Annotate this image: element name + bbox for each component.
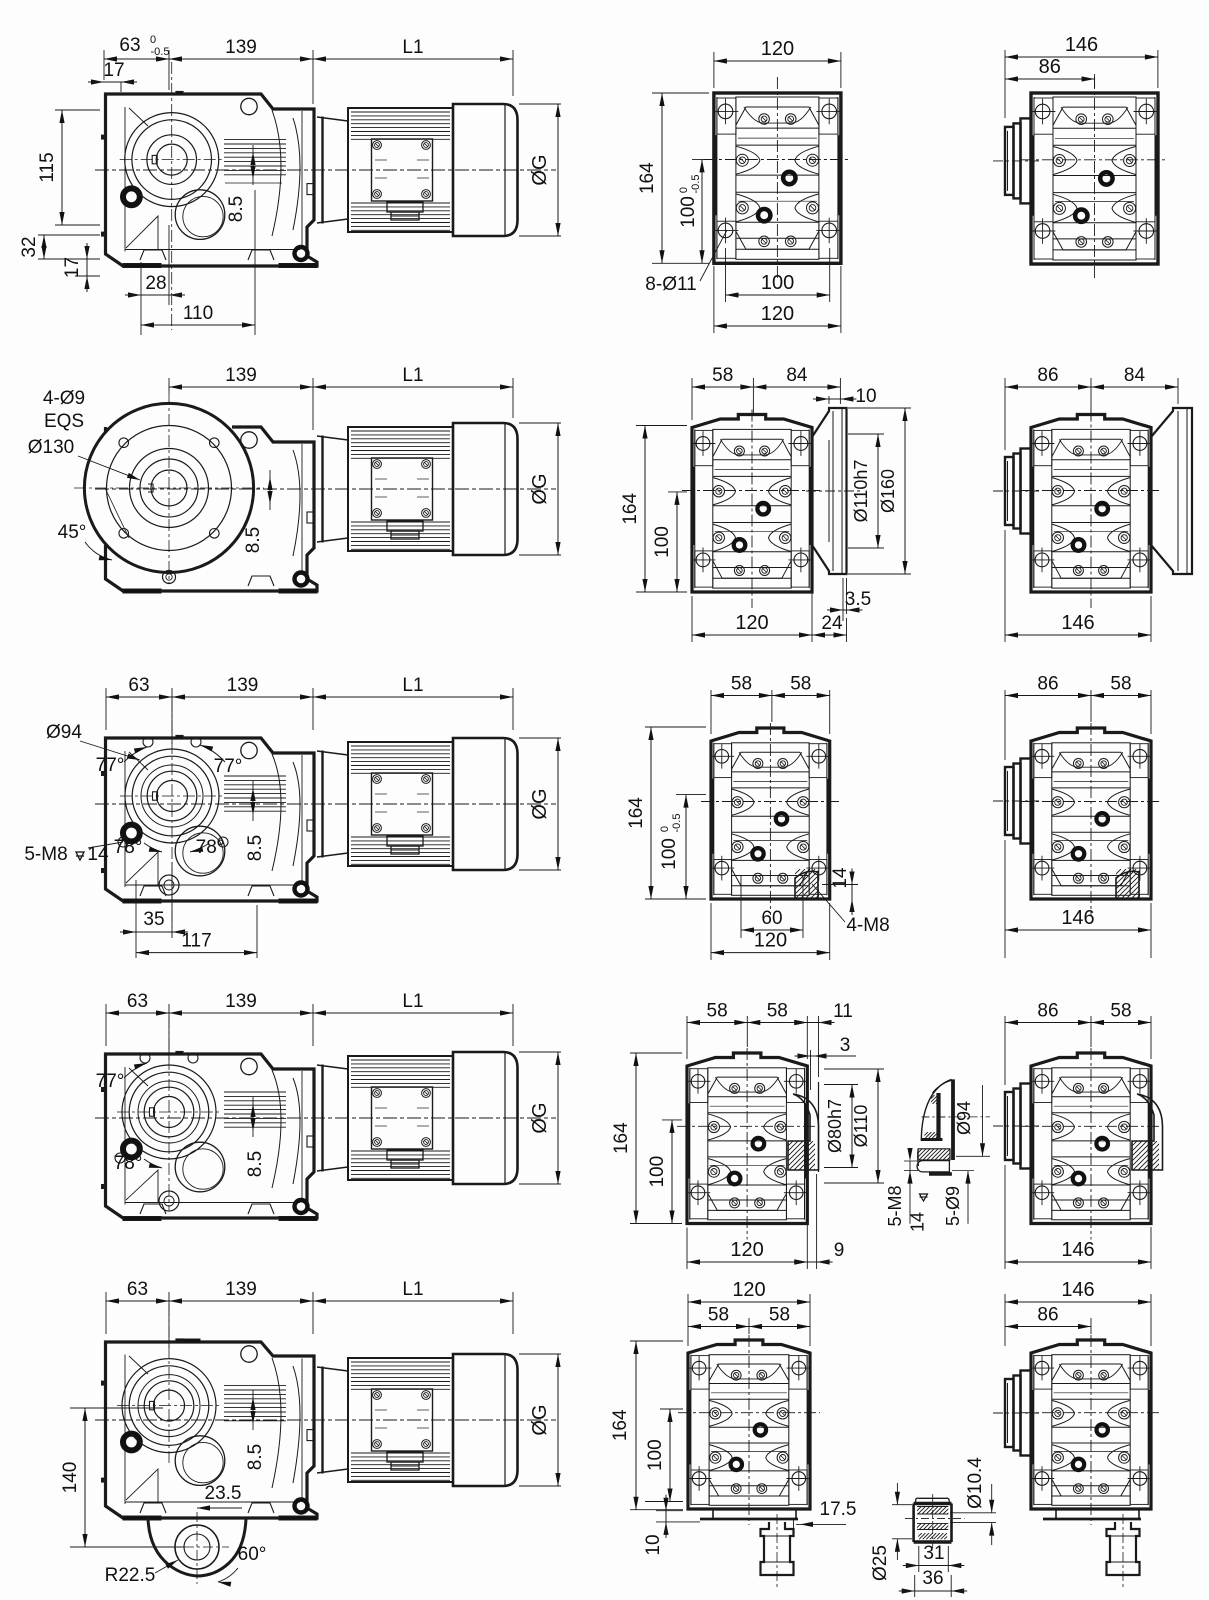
svg-text:4-Ø9: 4-Ø9 (43, 388, 85, 409)
svg-text:58: 58 (707, 1001, 728, 1022)
svg-text:58: 58 (767, 1001, 788, 1022)
svg-text:17: 17 (62, 257, 83, 278)
svg-text:8.5: 8.5 (243, 527, 264, 553)
svg-text:23.5: 23.5 (205, 1483, 242, 1504)
svg-text:78°: 78° (114, 1153, 143, 1174)
svg-text:58: 58 (708, 1305, 729, 1326)
svg-text:ØG: ØG (529, 788, 551, 819)
svg-text:164: 164 (610, 1409, 631, 1441)
svg-text:11: 11 (833, 1001, 853, 1022)
svg-text:58: 58 (1110, 1001, 1131, 1022)
svg-text:120: 120 (754, 930, 787, 952)
svg-text:139: 139 (225, 365, 257, 386)
svg-text:L1: L1 (402, 675, 423, 696)
svg-text:58: 58 (731, 674, 752, 695)
svg-text:86: 86 (1037, 365, 1058, 386)
svg-text:100: 100 (652, 526, 673, 558)
svg-text:5-M8: 5-M8 (885, 1185, 905, 1226)
svg-text:84: 84 (1124, 365, 1146, 386)
svg-text:100: 100 (645, 1439, 666, 1471)
svg-text:8.5: 8.5 (245, 1151, 266, 1177)
svg-text:5-M8: 5-M8 (24, 844, 67, 865)
svg-text:86: 86 (1039, 56, 1061, 78)
svg-text:24: 24 (821, 613, 843, 634)
svg-text:84: 84 (786, 365, 808, 386)
svg-text:139: 139 (225, 991, 257, 1012)
svg-text:Ø110: Ø110 (851, 1105, 871, 1148)
svg-text:8.5: 8.5 (226, 196, 247, 222)
svg-text:77°: 77° (214, 756, 243, 777)
svg-text:Ø160: Ø160 (878, 469, 898, 513)
svg-text:86: 86 (1037, 1001, 1058, 1022)
svg-text:36: 36 (922, 1568, 943, 1589)
svg-text:60°: 60° (238, 1544, 267, 1565)
svg-text:58: 58 (712, 365, 733, 386)
svg-text:8-Ø11: 8-Ø11 (645, 274, 696, 295)
svg-text:100: 100 (678, 196, 699, 228)
svg-text:100: 100 (761, 272, 794, 294)
svg-text:63: 63 (119, 35, 140, 56)
svg-text:L1: L1 (402, 365, 423, 386)
svg-text:14: 14 (830, 867, 851, 889)
svg-text:32: 32 (19, 236, 40, 257)
svg-text:-0.5: -0.5 (690, 175, 702, 194)
svg-text:77°: 77° (96, 755, 125, 776)
svg-text:ØG: ØG (529, 473, 551, 504)
svg-text:0: 0 (678, 187, 690, 193)
svg-text:ØG: ØG (529, 154, 551, 185)
svg-text:17.5: 17.5 (820, 1499, 857, 1520)
svg-text:L1: L1 (402, 37, 423, 58)
svg-text:L1: L1 (402, 1279, 423, 1300)
svg-text:3: 3 (840, 1035, 851, 1056)
svg-text:120: 120 (732, 1279, 765, 1301)
svg-text:0: 0 (659, 826, 671, 832)
svg-text:ØG: ØG (529, 1102, 551, 1133)
svg-text:Ø94: Ø94 (954, 1101, 974, 1135)
svg-text:Ø10.4: Ø10.4 (965, 1457, 986, 1509)
svg-text:5-Ø9: 5-Ø9 (943, 1186, 963, 1226)
svg-text:146: 146 (1061, 1279, 1094, 1301)
svg-text:164: 164 (620, 493, 641, 525)
svg-text:77°: 77° (96, 1071, 125, 1092)
svg-text:8.5: 8.5 (245, 835, 266, 861)
svg-text:60: 60 (761, 908, 782, 929)
svg-text:139: 139 (225, 37, 257, 58)
svg-text:4-M8: 4-M8 (846, 915, 889, 936)
svg-text:58: 58 (769, 1305, 790, 1326)
svg-text:Ø80h7: Ø80h7 (825, 1099, 845, 1153)
svg-text:120: 120 (730, 1239, 763, 1261)
svg-text:86: 86 (1037, 1305, 1058, 1326)
svg-text:3.5: 3.5 (845, 589, 871, 610)
svg-text:120: 120 (761, 38, 794, 60)
svg-text:L1: L1 (402, 991, 423, 1012)
svg-text:Ø130: Ø130 (28, 437, 74, 458)
svg-text:78°: 78° (196, 837, 225, 858)
svg-text:146: 146 (1061, 612, 1094, 634)
svg-text:0: 0 (150, 34, 156, 46)
svg-text:ØG: ØG (529, 1404, 551, 1435)
svg-text:-0.5: -0.5 (671, 814, 683, 833)
svg-text:146: 146 (1065, 34, 1098, 56)
svg-text:8.5: 8.5 (245, 1444, 266, 1470)
svg-text:EQS: EQS (44, 411, 84, 432)
svg-text:Ø25: Ø25 (870, 1545, 891, 1581)
svg-text:100: 100 (647, 1156, 668, 1188)
svg-text:100: 100 (659, 838, 680, 870)
svg-text:63: 63 (127, 1279, 148, 1300)
svg-text:14: 14 (908, 1212, 928, 1232)
svg-text:R22.5: R22.5 (105, 1565, 156, 1586)
svg-text:146: 146 (1061, 907, 1094, 929)
svg-text:139: 139 (227, 675, 259, 696)
svg-text:110: 110 (183, 303, 213, 324)
svg-text:117: 117 (181, 931, 211, 952)
svg-text:9: 9 (834, 1240, 845, 1261)
svg-text:63: 63 (127, 991, 148, 1012)
svg-text:140: 140 (60, 1462, 81, 1494)
svg-text:78°: 78° (114, 837, 143, 858)
svg-text:Ø110h7: Ø110h7 (851, 460, 871, 523)
svg-text:-0.5: -0.5 (151, 46, 170, 58)
svg-text:146: 146 (1061, 1239, 1094, 1261)
svg-text:Ø94: Ø94 (46, 722, 82, 743)
svg-text:58: 58 (790, 674, 811, 695)
svg-text:28: 28 (145, 273, 166, 294)
svg-text:120: 120 (735, 612, 768, 634)
svg-text:164: 164 (611, 1122, 632, 1154)
svg-text:17: 17 (103, 60, 124, 81)
svg-text:45°: 45° (58, 522, 87, 543)
svg-text:86: 86 (1037, 674, 1058, 695)
svg-text:10: 10 (643, 1534, 664, 1555)
svg-text:10: 10 (855, 386, 876, 407)
svg-text:63: 63 (128, 675, 149, 696)
svg-text:164: 164 (637, 162, 658, 194)
svg-text:35: 35 (143, 909, 164, 930)
svg-text:120: 120 (761, 303, 794, 325)
svg-text:139: 139 (225, 1279, 257, 1300)
svg-text:58: 58 (1110, 674, 1131, 695)
svg-text:31: 31 (923, 1543, 944, 1564)
svg-text:164: 164 (626, 797, 647, 829)
svg-text:115: 115 (37, 152, 58, 182)
